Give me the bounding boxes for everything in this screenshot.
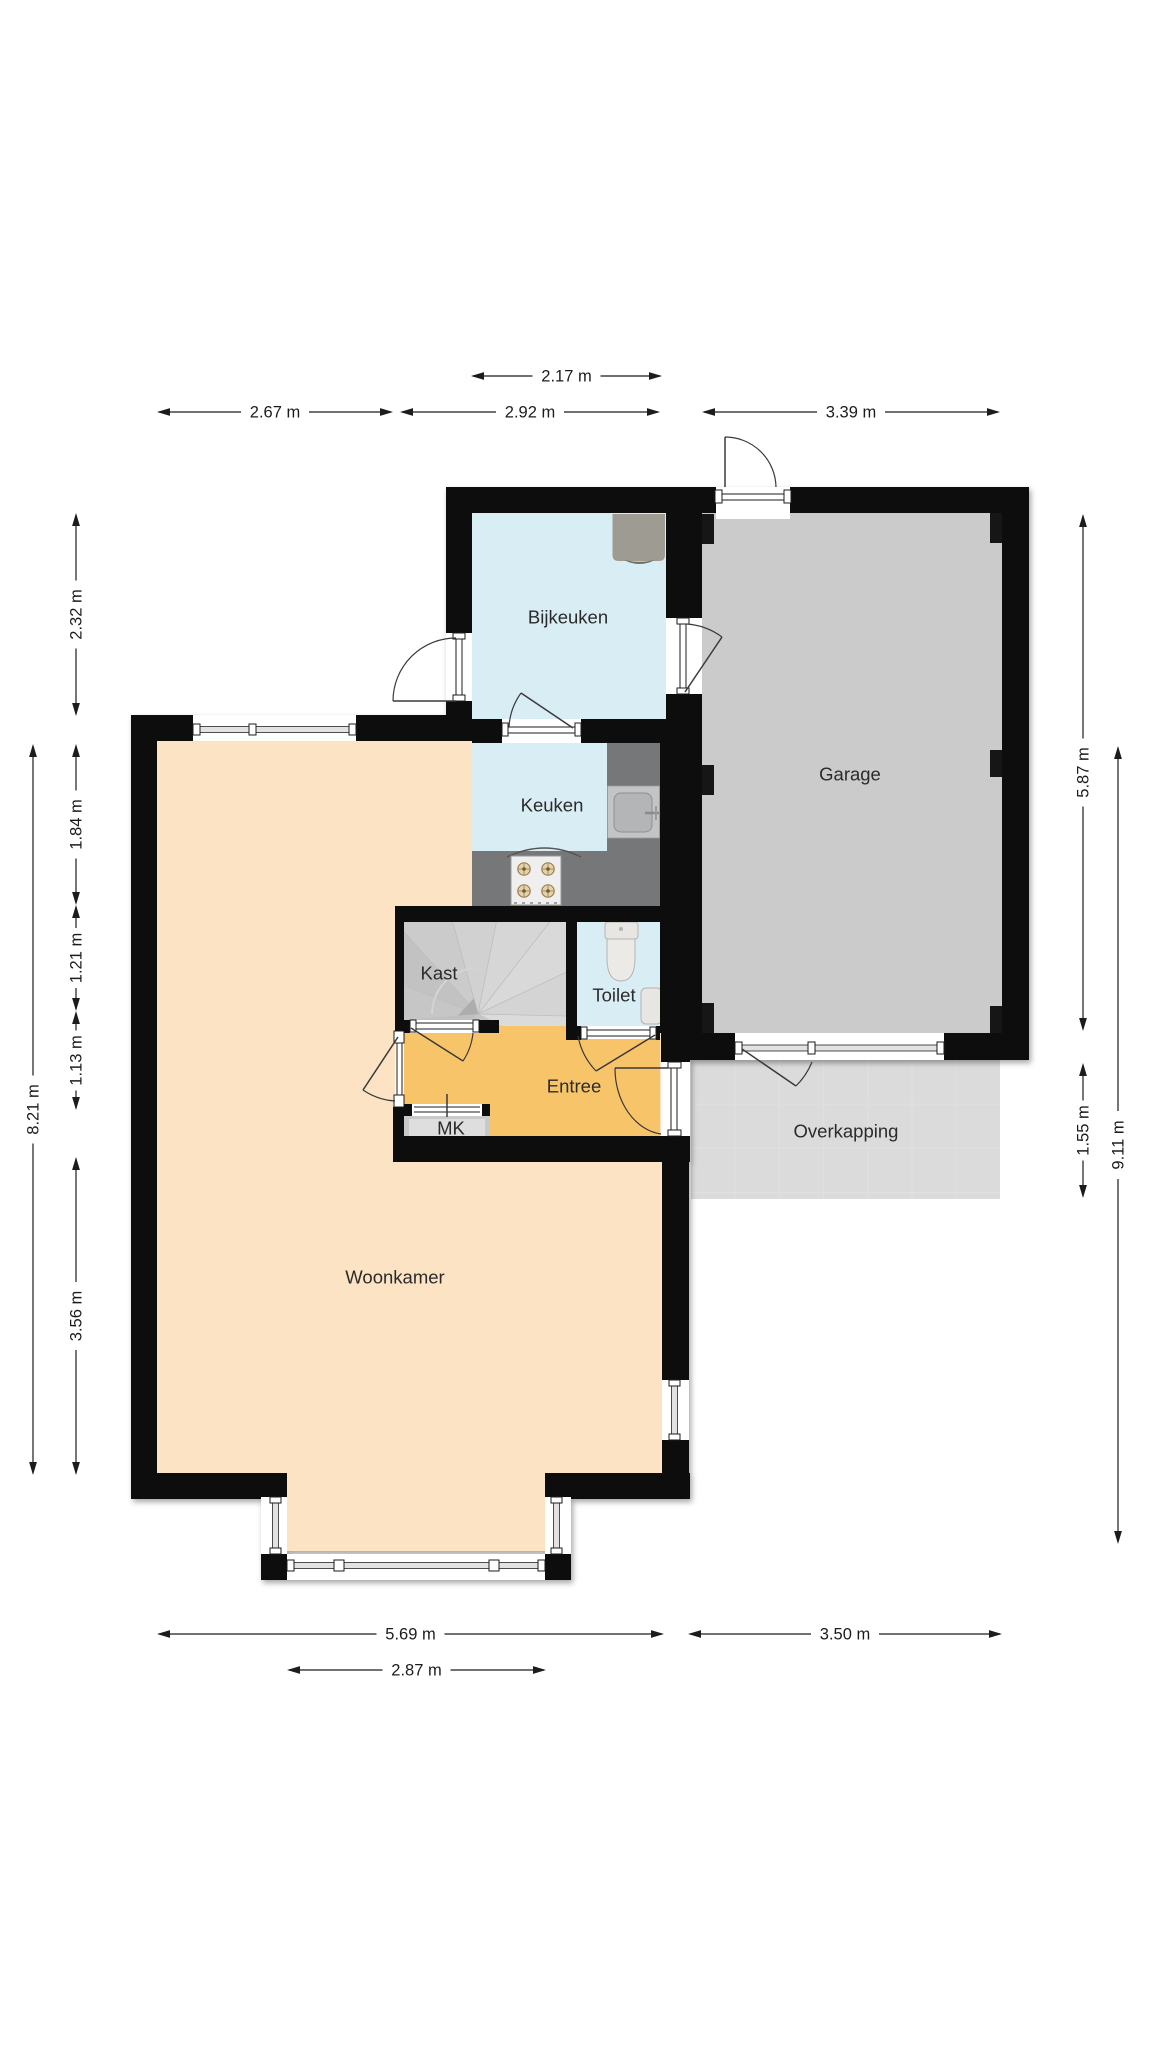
svg-text:Kast: Kast (420, 963, 457, 984)
svg-text:2.87 m: 2.87 m (391, 1662, 441, 1680)
svg-text:Garage: Garage (819, 764, 881, 785)
svg-text:3.39 m: 3.39 m (826, 404, 876, 422)
svg-text:Keuken: Keuken (521, 795, 584, 816)
svg-text:2.32 m: 2.32 m (68, 589, 86, 639)
svg-text:MK: MK (437, 1118, 465, 1139)
svg-text:1.55 m: 1.55 m (1075, 1105, 1093, 1155)
svg-text:2.17 m: 2.17 m (541, 368, 591, 386)
svg-text:Woonkamer: Woonkamer (345, 1267, 444, 1288)
svg-text:3.50 m: 3.50 m (820, 1626, 870, 1644)
svg-text:1.13 m: 1.13 m (68, 1035, 86, 1085)
svg-text:2.92 m: 2.92 m (505, 404, 555, 422)
svg-text:1.21 m: 1.21 m (68, 933, 86, 983)
svg-text:Toilet: Toilet (592, 985, 635, 1006)
svg-text:8.21 m: 8.21 m (25, 1084, 43, 1134)
svg-text:5.87 m: 5.87 m (1075, 747, 1093, 797)
svg-text:5.69 m: 5.69 m (385, 1626, 435, 1644)
svg-text:Overkapping: Overkapping (794, 1121, 899, 1142)
svg-text:Entree: Entree (547, 1076, 602, 1097)
svg-text:9.11 m: 9.11 m (1110, 1120, 1128, 1169)
svg-text:2.67 m: 2.67 m (250, 404, 300, 422)
svg-text:Bijkeuken: Bijkeuken (528, 607, 608, 628)
svg-text:3.56 m: 3.56 m (68, 1291, 86, 1341)
svg-text:1.84 m: 1.84 m (68, 799, 86, 849)
